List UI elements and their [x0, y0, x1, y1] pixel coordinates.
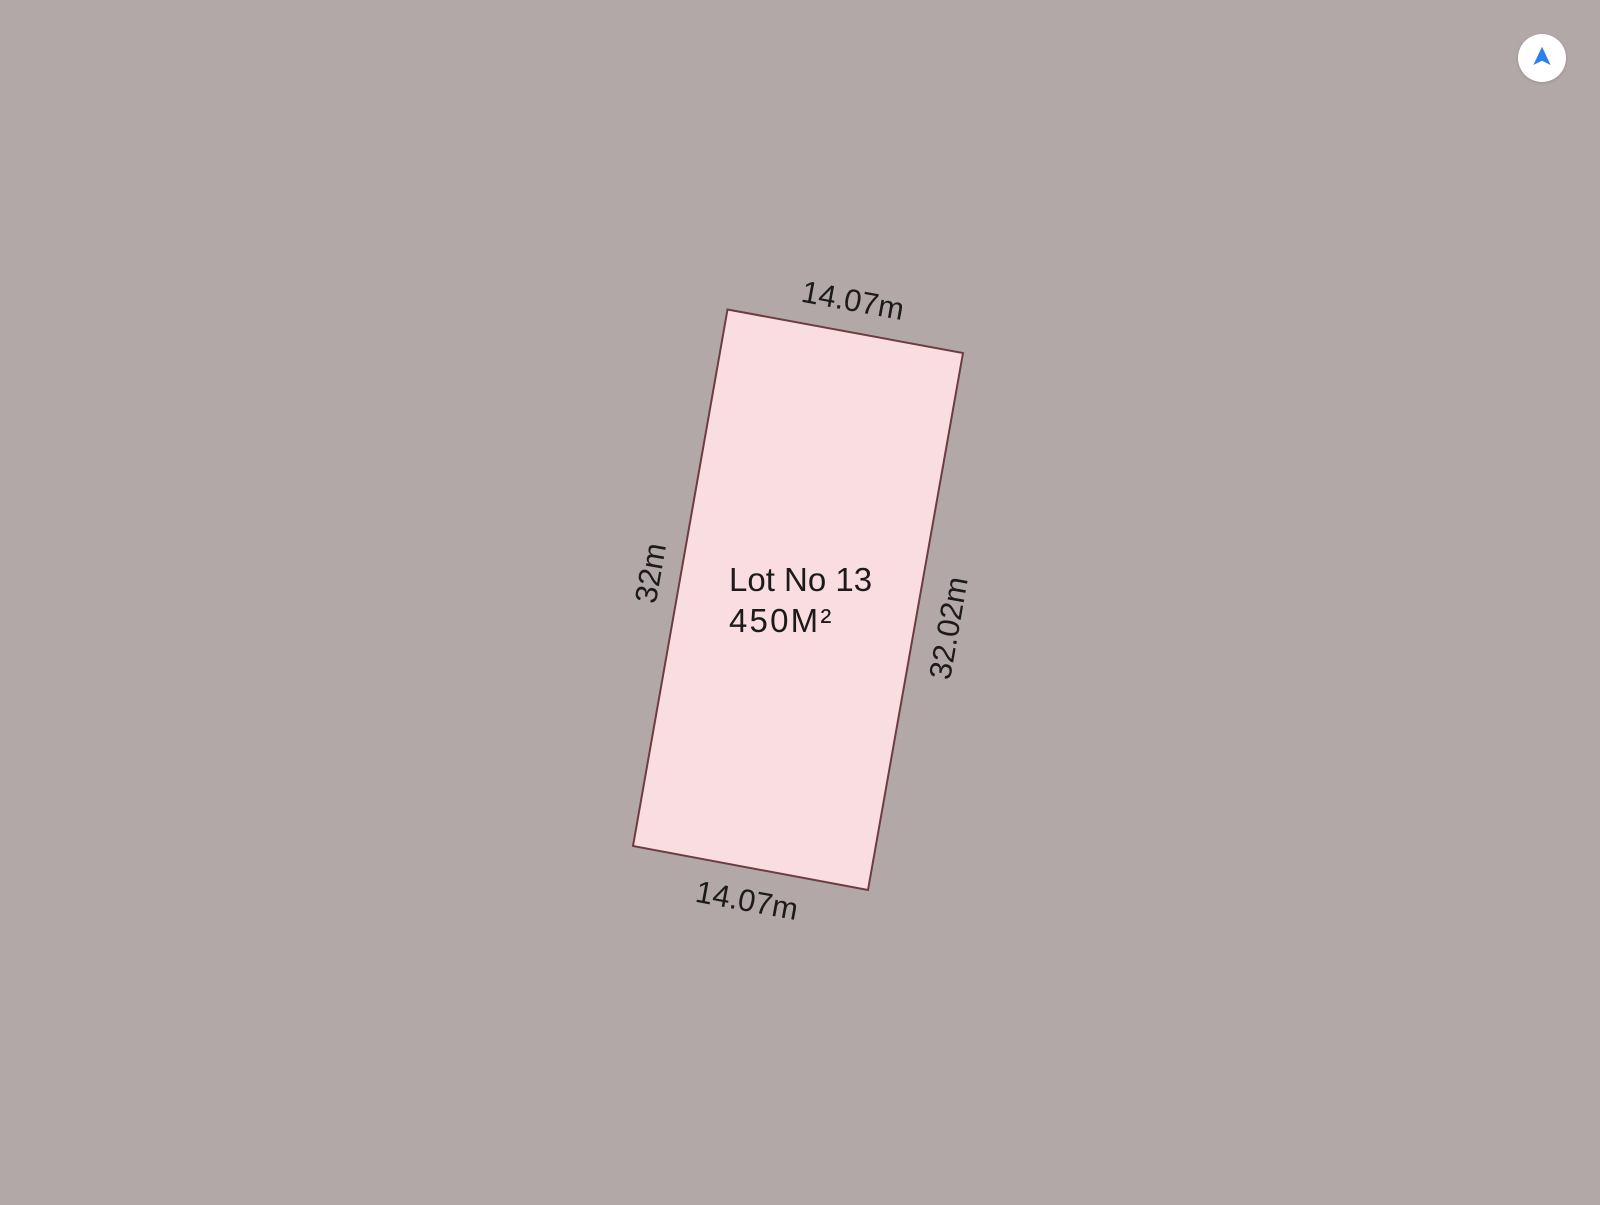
svg-text:14.07m: 14.07m — [693, 874, 801, 927]
svg-text:14.07m: 14.07m — [799, 274, 907, 327]
svg-text:32m: 32m — [628, 540, 673, 605]
svg-text:Lot No 13: Lot No 13 — [729, 561, 872, 598]
svg-text:32.02m: 32.02m — [922, 574, 974, 682]
svg-text:450M²: 450M² — [729, 602, 834, 639]
